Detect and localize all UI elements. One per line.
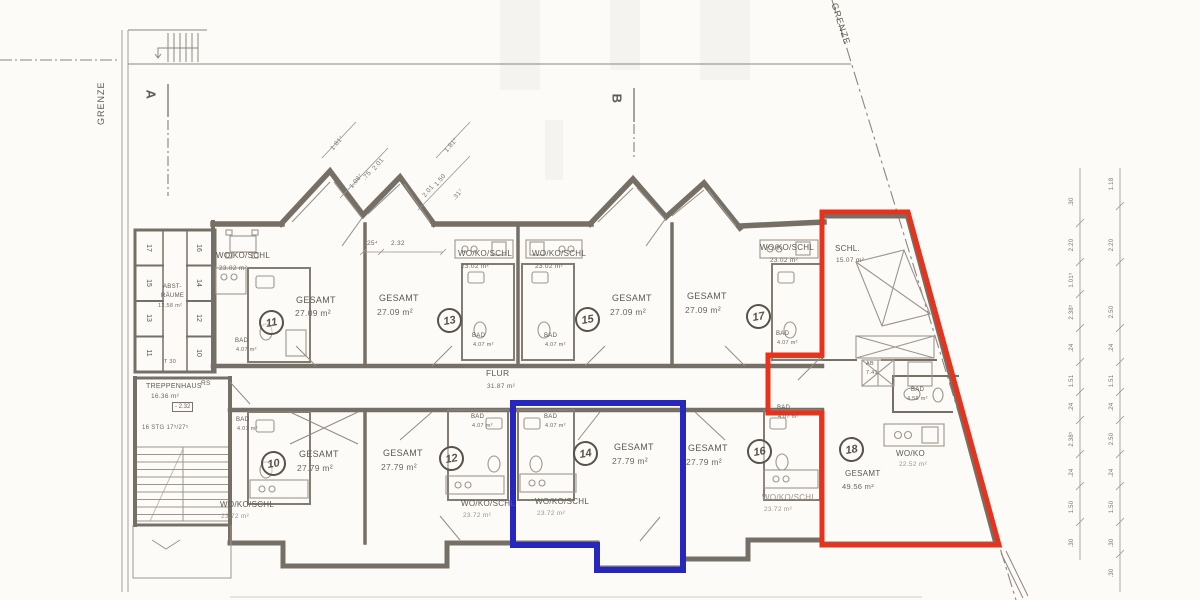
storage-unit: 16: [192, 241, 206, 255]
stairwell-steps: 16 STG 17⁵/27⁵: [142, 425, 189, 431]
apt18-ab-label: AB: [866, 362, 874, 368]
apt17-gesamt-label: GESAMT: [687, 292, 727, 301]
storage-unit: 10: [192, 346, 206, 360]
apt12-bad-label: BAD: [471, 414, 484, 420]
floorplan-drawing: [0, 0, 1200, 600]
apt11-gesamt-label: GESAMT: [296, 296, 336, 305]
apt13-dim-a: 25⁴: [367, 241, 378, 248]
dim-right-outer: .24: [1109, 335, 1115, 361]
apt14-bad-label: BAD: [544, 414, 557, 420]
apt17-bad-label: BAD: [776, 331, 789, 337]
apt18-wo-area: 22.52 m²: [899, 462, 927, 469]
storage-unit: 17: [142, 241, 156, 255]
dim-right-inner: 1.50: [1069, 494, 1075, 520]
dim-right-outer: .30: [1109, 560, 1115, 586]
section-marker-a: A: [144, 90, 157, 100]
dim-right-inner: 2.20: [1069, 232, 1075, 258]
apt18-ab-area: 7.41: [866, 371, 878, 377]
apt17-wohn-label: WO/KO/SCHL: [760, 244, 814, 252]
storage-unit: 11: [142, 346, 156, 360]
dim-right-outer: 1.51: [1109, 368, 1115, 394]
storage-unit: 12: [192, 311, 206, 325]
apt16-wohn-area: 23.72 m²: [764, 507, 792, 514]
apt17-gesamt-area: 27.09 m²: [685, 306, 721, 315]
storage-label-1: ABST-: [163, 284, 182, 290]
apt11-wohn-label: WO/KO/SCHL: [216, 252, 270, 260]
dim-right-outer: 2.50: [1109, 299, 1115, 325]
apt16-wohn-label: WO/KO/SCHL: [762, 494, 816, 502]
apt10-bad-area: 4.07 m²: [237, 427, 258, 433]
apt14-bad-area: 4.07 m²: [545, 424, 566, 430]
dimension-lines: [322, 122, 1124, 592]
apt18-bad-area: 4.56 m²: [907, 397, 928, 403]
stairwell-rs: RS: [201, 381, 211, 388]
dim-right-inner: 2.38⁵: [1069, 299, 1075, 325]
apt18-schl-area: 15.07 m²: [836, 258, 864, 265]
apt13-bad-label: BAD: [472, 333, 485, 339]
apt18-bad-label: BAD: [911, 387, 924, 393]
stairwell-level-box: - 2.32: [172, 402, 193, 412]
storage-door: T 30: [164, 360, 176, 366]
apt10-gesamt-area: 27.79 m²: [297, 464, 333, 473]
apt10-bad-label: BAD: [236, 417, 249, 423]
storage-unit: 15: [142, 276, 156, 290]
dim-right-inner: 2.38⁵: [1069, 426, 1075, 452]
dim-right-inner: .24: [1069, 460, 1075, 486]
apt15-bad-area: 4.07 m²: [545, 343, 566, 349]
apt10-wohn-area: 23.72 m²: [221, 514, 249, 521]
exterior-walls: [213, 171, 997, 568]
apt18-gesamt-label: GESAMT: [845, 470, 881, 478]
apt13-wohn-area: 23.02 m²: [461, 264, 489, 271]
apt14-gesamt-area: 27.79 m²: [612, 457, 648, 466]
apt12-bad-area: 4.07 m²: [472, 424, 493, 430]
apt13-gesamt-area: 27.09 m²: [377, 308, 413, 317]
apt11-bad-area: 4.07 m²: [236, 348, 257, 354]
dim-right-outer: .30: [1109, 530, 1115, 556]
apt15-wohn-area: 23.02 m²: [535, 264, 563, 271]
apt16-gesamt-label: GESAMT: [688, 444, 728, 453]
storage-label-2: RÄUME: [161, 293, 184, 299]
dim-right-outer: .24: [1109, 460, 1115, 486]
apt13-gesamt-label: GESAMT: [379, 294, 419, 303]
floorplan-scan: GRENZE GRENZE A B FLUR 31.87 m² TREPPENH…: [0, 0, 1200, 600]
corridor-label: FLUR: [486, 369, 509, 378]
apt17-bad-area: 4.07 m²: [777, 341, 798, 347]
dim-right-outer: .24: [1109, 394, 1115, 420]
apt14-wohn-area: 23.72 m²: [537, 511, 565, 518]
apt17-wohn-area: 23.02 m²: [770, 258, 798, 265]
section-marker-b: B: [610, 94, 623, 104]
apt16-bad-area: 4.07 m²: [778, 415, 799, 421]
apt15-gesamt-area: 27.09 m²: [610, 308, 646, 317]
stairwell-treads: [133, 447, 231, 578]
dim-right-inner: .30: [1069, 530, 1075, 556]
apt12-wohn-area: 23.72 m²: [463, 513, 491, 520]
apt12-wohn-label: WO/KO/SCHL: [461, 500, 515, 508]
corridor-area: 31.87 m²: [487, 384, 515, 391]
storage-unit: 14: [192, 276, 206, 290]
apt18-schl-label: SCHL.: [835, 245, 860, 253]
dim-right-inner: 1.51: [1069, 368, 1075, 394]
apt16-bad-label: BAD: [777, 405, 790, 411]
dim-right-outer: 2.50: [1109, 426, 1115, 452]
dim-right-outer: 2.20: [1109, 232, 1115, 258]
storage-unit: 13: [142, 311, 156, 325]
dim-right-inner: .24: [1069, 335, 1075, 361]
apt15-wohn-label: WO/KO/SCHL: [532, 250, 586, 258]
site-stairs-icon: [128, 30, 207, 62]
apt15-gesamt-label: GESAMT: [612, 294, 652, 303]
storage-area: 12.58 m²: [158, 304, 182, 310]
apt13-wohn-label: WO/KO/SCHL: [458, 250, 512, 258]
apt18-wo-label: WO/KO: [896, 450, 925, 458]
stairwell-area: 16.36 m²: [151, 394, 179, 401]
apt11-wohn-area: 23.02 m²: [219, 266, 247, 273]
apt10-gesamt-label: GESAMT: [299, 450, 339, 459]
dim-right-inner: 1.01⁵: [1069, 267, 1075, 293]
apt11-bad-label: BAD: [235, 338, 248, 344]
apt14-gesamt-label: GESAMT: [614, 443, 654, 452]
dim-right-inner: .24: [1069, 394, 1075, 420]
dim-right-outer: 1.18: [1109, 171, 1115, 197]
stairwell-label: TREPPENHAUS: [146, 383, 202, 390]
apt15-bad-label: BAD: [544, 333, 557, 339]
dim-right-inner: .30: [1069, 189, 1075, 215]
gable-inner-lines: [292, 182, 736, 226]
apt13-dim-b: 2.32: [391, 241, 405, 248]
apt14-wohn-label: WO/KO/SCHL: [535, 498, 589, 506]
grenze-left-label: GRENZE: [97, 81, 106, 125]
apt12-gesamt-area: 27.79 m²: [381, 463, 417, 472]
dim-right-outer: 1.50: [1109, 494, 1115, 520]
apt18-gesamt-area: 49.56 m²: [842, 483, 874, 491]
apt11-gesamt-area: 27.09 m²: [295, 309, 331, 318]
scan-artifacts: [500, 0, 750, 180]
apt10-wohn-label: WO/KO/SCHL: [220, 501, 274, 509]
apt13-bad-area: 4.07 m²: [473, 343, 494, 349]
apt16-gesamt-area: 27.79 m²: [686, 458, 722, 467]
highlight-blue-apartment-14: [513, 403, 683, 570]
apt12-gesamt-label: GESAMT: [383, 449, 423, 458]
